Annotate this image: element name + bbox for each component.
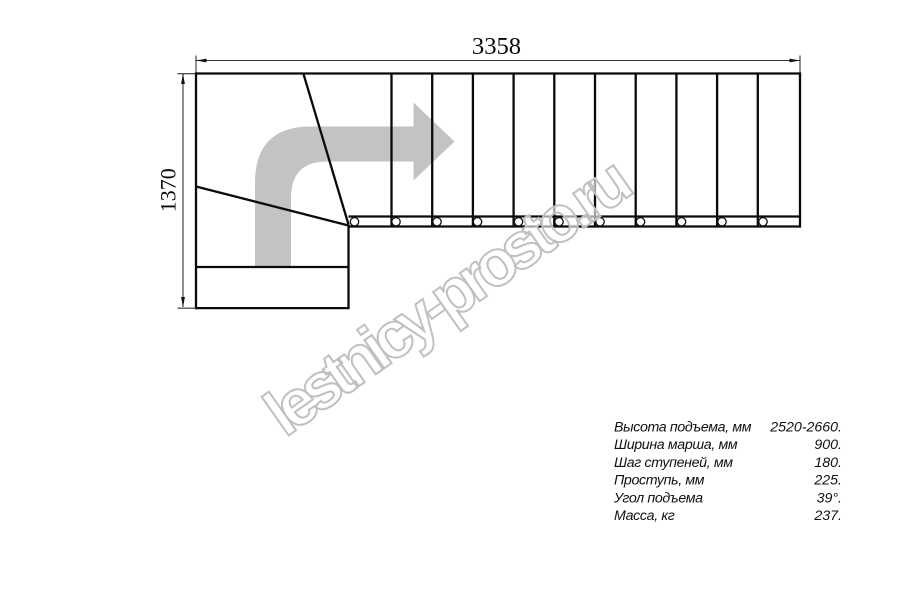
- svg-text:Ширина марша, мм: Ширина марша, мм: [614, 437, 738, 453]
- svg-text:Масса, кг: Масса, кг: [614, 508, 675, 524]
- svg-text:Проступь, мм: Проступь, мм: [614, 473, 705, 489]
- svg-text:Угол подъема: Угол подъема: [613, 490, 703, 506]
- svg-text:2520-2660.: 2520-2660.: [769, 420, 842, 436]
- svg-text:Высота подъема, мм: Высота подъема, мм: [614, 420, 752, 436]
- svg-text:237.: 237.: [813, 508, 842, 524]
- svg-text:Шаг ступеней, мм: Шаг ступеней, мм: [614, 455, 733, 471]
- svg-text:180.: 180.: [814, 455, 842, 471]
- svg-text:225.: 225.: [813, 473, 842, 489]
- svg-text:39°.: 39°.: [817, 490, 842, 506]
- svg-text:3358: 3358: [472, 33, 521, 60]
- svg-text:1370: 1370: [156, 168, 181, 212]
- svg-text:900.: 900.: [814, 437, 842, 453]
